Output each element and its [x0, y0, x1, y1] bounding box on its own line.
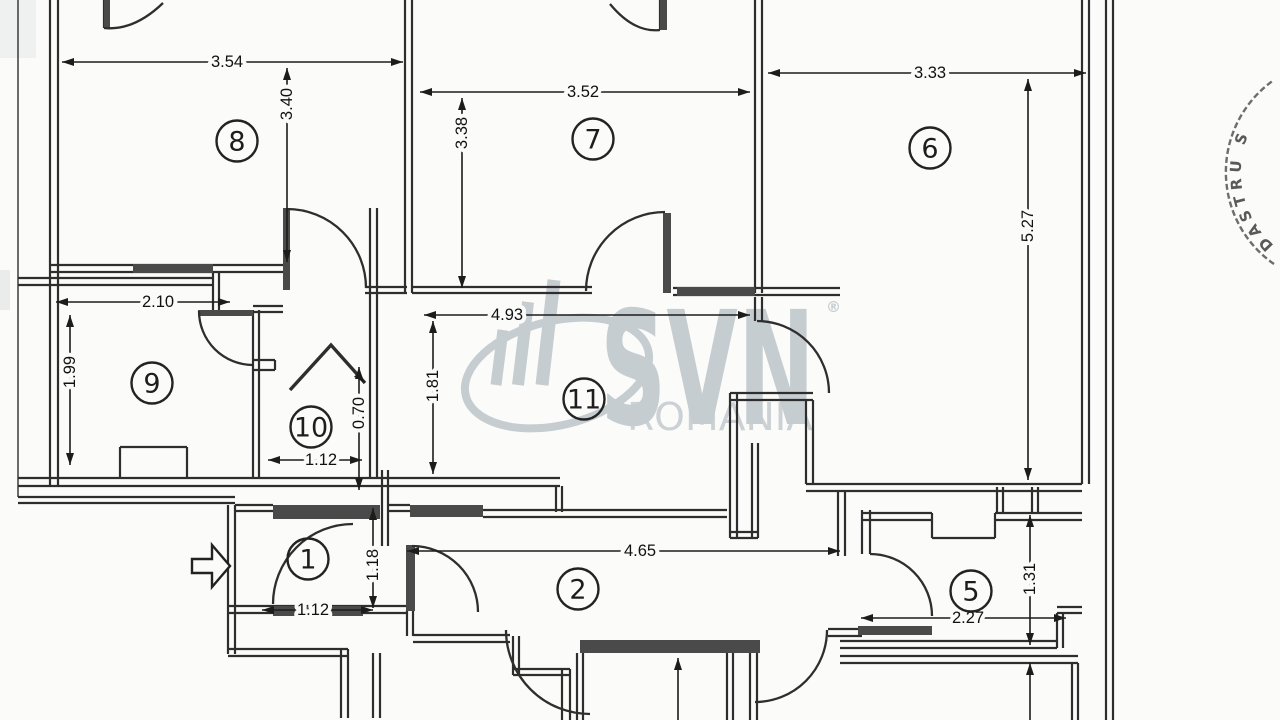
floor-plan-canvas: SVN®ROMANIADASTRU S3.543.403.523.383.335… — [0, 0, 1280, 720]
room-number: 9 — [143, 369, 160, 400]
door-threshold — [580, 640, 760, 653]
door-threshold — [198, 310, 253, 316]
dimension-label: 1.12 — [305, 451, 337, 469]
room-label-10: 10 — [291, 407, 332, 448]
dimension-label: 3.33 — [914, 64, 946, 82]
door-threshold — [104, 0, 110, 28]
room-number: 10 — [294, 413, 328, 444]
door-threshold — [133, 264, 213, 273]
room-number: 8 — [228, 127, 245, 158]
dimension-label: 1.31 — [1021, 563, 1039, 595]
dimension-label: 4.65 — [624, 542, 656, 560]
dimension-label: 3.40 — [278, 88, 296, 120]
dimension-label: 3.52 — [567, 83, 599, 101]
room-label-11: 11 — [564, 379, 605, 420]
door-threshold — [858, 626, 932, 635]
door-threshold — [406, 545, 415, 611]
door-threshold — [677, 287, 755, 296]
door-threshold — [410, 505, 483, 517]
room-number: 11 — [567, 385, 601, 416]
dimension-label: 2.10 — [142, 293, 174, 311]
watermark-subtitle: ROMANIA — [627, 395, 813, 439]
dimension-label: 1.18 — [364, 549, 382, 581]
door-threshold — [663, 213, 671, 293]
dimension-label: 5.27 — [1019, 210, 1037, 242]
dimension-label: 1.12 — [297, 601, 329, 619]
room-number: 5 — [962, 577, 979, 608]
floor-plan-page: SVN®ROMANIADASTRU S3.543.403.523.383.335… — [0, 0, 1280, 720]
dimension-label: 3.54 — [211, 53, 243, 71]
scan-smudge — [0, 270, 10, 310]
dimension-label: 1.99 — [61, 356, 79, 388]
room-number: 7 — [584, 125, 601, 156]
dimension-label: 4.93 — [491, 306, 523, 324]
watermark-registered-icon: ® — [826, 298, 841, 316]
door-threshold — [273, 505, 380, 519]
door-threshold — [660, 0, 667, 30]
dimension-label: 3.38 — [453, 117, 471, 149]
dimension-label: 0.70 — [350, 397, 368, 429]
room-number: 2 — [569, 575, 586, 606]
room-number: 6 — [921, 134, 938, 165]
dimension-label: 1.81 — [424, 370, 442, 402]
room-number: 1 — [299, 545, 316, 576]
